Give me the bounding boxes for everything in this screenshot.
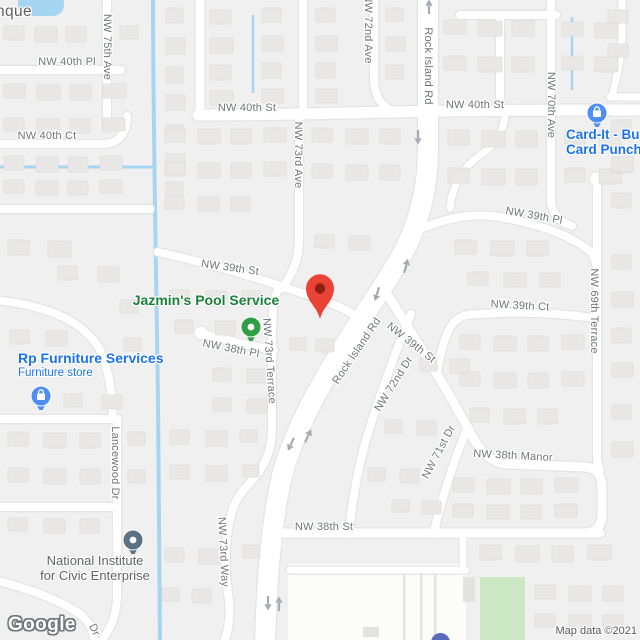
building (80, 469, 100, 484)
building (128, 432, 145, 445)
building (346, 165, 368, 180)
lot-strip (420, 573, 423, 640)
building (103, 118, 125, 131)
building (262, 63, 281, 78)
building (290, 338, 306, 350)
building (165, 196, 184, 209)
building (521, 479, 542, 494)
building (608, 10, 628, 23)
street-label: NW 70th Ave (545, 72, 557, 138)
building (417, 421, 436, 435)
building (4, 156, 24, 170)
building (100, 156, 122, 170)
building (468, 272, 488, 285)
building (400, 469, 419, 483)
building (192, 589, 211, 603)
building (166, 95, 185, 110)
building (4, 84, 25, 98)
building (199, 549, 220, 564)
street-label: Lancewood Dr (109, 426, 121, 499)
building (535, 614, 555, 627)
street-label: NW 40th Pl (38, 56, 96, 68)
building (58, 266, 77, 280)
poi-pin-rp-furniture-services[interactable] (29, 378, 53, 415)
building (4, 26, 24, 40)
street-label: NW 40th Ct (18, 130, 77, 142)
street-label: NW 73rd Ave (292, 122, 304, 189)
building (165, 548, 184, 562)
building (315, 235, 334, 248)
building (175, 320, 193, 333)
red-map-pin-marker[interactable] (306, 274, 334, 325)
building (170, 430, 189, 444)
building (612, 193, 631, 208)
building (453, 478, 474, 492)
poi-label-card-it-card-punch[interactable]: Card-It - BuCard Punch (566, 128, 640, 157)
gray-building (363, 627, 379, 637)
shopping-bag-pin-icon (585, 95, 609, 127)
building (166, 38, 185, 54)
building (68, 181, 88, 195)
building (206, 466, 227, 481)
building (562, 56, 583, 70)
building (316, 36, 337, 51)
building (512, 57, 534, 72)
building (35, 27, 57, 42)
building (8, 518, 27, 531)
building (569, 586, 591, 601)
building (166, 182, 183, 197)
building (231, 129, 251, 144)
building (262, 8, 281, 22)
building (555, 478, 578, 492)
building (210, 65, 231, 80)
building (562, 335, 584, 349)
building (444, 56, 466, 70)
building (103, 84, 126, 98)
building (240, 430, 257, 442)
building (36, 181, 58, 195)
building (538, 409, 557, 424)
street-label: Rock Island Rd (422, 27, 434, 104)
building (37, 85, 60, 100)
building (44, 519, 65, 533)
building (470, 408, 489, 422)
building (48, 241, 71, 257)
building (98, 267, 119, 282)
building (422, 501, 441, 514)
building (453, 504, 473, 517)
building (487, 505, 509, 519)
locality-label: nque (0, 3, 32, 21)
building (562, 22, 583, 36)
building (166, 67, 183, 83)
building (540, 273, 560, 287)
building (262, 36, 283, 51)
building (386, 37, 405, 51)
building (215, 321, 235, 335)
dot-pin-icon (121, 522, 145, 554)
building (10, 330, 29, 344)
building (392, 500, 409, 512)
poi-subtitle: Furniture store (18, 366, 164, 381)
building (264, 162, 286, 176)
building (36, 157, 58, 172)
building (4, 180, 24, 193)
building (516, 546, 539, 562)
building (612, 405, 631, 419)
building (243, 465, 259, 477)
building (612, 328, 631, 343)
building (247, 399, 267, 413)
building (44, 469, 66, 484)
building (480, 545, 501, 560)
park-area (480, 577, 525, 640)
street-label: NW 75th Ave (101, 14, 113, 80)
building (460, 335, 480, 349)
building (521, 505, 541, 519)
building (512, 21, 534, 36)
building (565, 168, 585, 182)
building (555, 504, 577, 517)
building (64, 394, 82, 407)
building (231, 197, 250, 211)
building (385, 420, 402, 433)
lot-strip (434, 573, 437, 640)
building (460, 372, 480, 386)
building (262, 89, 283, 103)
building (166, 8, 183, 23)
building (44, 433, 66, 448)
building (448, 130, 469, 145)
building (386, 8, 403, 21)
building (243, 545, 260, 558)
building (316, 63, 335, 78)
building (494, 373, 516, 388)
building (380, 129, 400, 144)
poi-title-line: Card-It - Bu (566, 128, 640, 143)
building (603, 586, 623, 601)
building (528, 373, 548, 388)
building (482, 169, 505, 185)
building (478, 21, 502, 36)
building (231, 163, 251, 178)
building (595, 23, 618, 38)
building (504, 409, 525, 424)
poi-title-line: for Civic Enterprise (40, 569, 150, 584)
building (165, 128, 185, 142)
building (448, 168, 469, 183)
building (380, 165, 400, 180)
gray-building (463, 577, 475, 602)
building (165, 162, 185, 176)
building (70, 85, 91, 100)
google-logo[interactable]: Google (8, 614, 76, 636)
map-canvas[interactable]: NW 40th PlNW 75th AveNW 40th StNW 40th C… (0, 0, 640, 640)
building (487, 479, 510, 494)
poi-label-jazmins-pool-service[interactable]: Jazmin's Pool Service (133, 293, 280, 308)
building (444, 20, 466, 34)
street-label: NW 72nd Ave (362, 0, 374, 64)
building (494, 336, 516, 351)
building (312, 164, 332, 178)
building (100, 180, 122, 193)
poi-title-line: Jazmin's Pool Service (133, 293, 280, 308)
poi-title-line: Rp Furniture Services (18, 351, 164, 366)
street-label: NW 69th Terrace (588, 268, 600, 353)
shopping-bag-pin-icon (29, 378, 53, 410)
building (491, 241, 514, 256)
building (46, 331, 67, 346)
building (482, 131, 505, 147)
building (8, 240, 29, 255)
poi-title-line: Card Punch (566, 143, 640, 158)
building (516, 131, 537, 147)
building (206, 431, 227, 446)
building (213, 368, 231, 381)
map-attribution: Map data ©2021 (556, 625, 638, 637)
poi-title-line: National Institute (40, 554, 150, 569)
building (527, 241, 548, 256)
building (66, 27, 86, 42)
dot-pin-icon (239, 309, 263, 341)
building (162, 588, 179, 601)
building (368, 468, 385, 481)
building (450, 359, 469, 373)
building (612, 363, 633, 377)
building (595, 57, 618, 72)
building (198, 197, 219, 211)
poi-label-national-institute-for-civic-enterprise[interactable]: National Institutefor Civic Enterprise (40, 554, 150, 583)
building (213, 398, 231, 411)
building (68, 157, 88, 172)
building (198, 129, 220, 144)
building (504, 273, 526, 287)
building (612, 255, 631, 269)
building (535, 585, 555, 599)
lot-strip (403, 573, 406, 640)
street-label: NW 40th St (446, 99, 504, 111)
building (386, 65, 403, 79)
building (346, 129, 368, 144)
building (210, 10, 231, 24)
building (80, 519, 99, 533)
street-label: NW 38th St (295, 521, 353, 533)
street-label: NW 40th St (218, 102, 276, 114)
building (562, 372, 584, 386)
building (612, 292, 633, 307)
building (210, 38, 233, 53)
building (608, 44, 628, 57)
building (316, 339, 334, 352)
poi-pin-jazmins-pool-service[interactable] (239, 309, 263, 346)
building (8, 432, 28, 446)
building (612, 442, 633, 457)
building (316, 89, 337, 103)
building (264, 128, 286, 142)
building (349, 236, 370, 250)
building (588, 545, 611, 560)
building (128, 470, 145, 483)
building (516, 169, 537, 185)
red-pin-icon (306, 274, 334, 320)
building (612, 157, 633, 172)
building (102, 395, 122, 409)
building (198, 163, 220, 178)
building (478, 57, 502, 72)
building (312, 128, 332, 142)
building (552, 546, 573, 562)
building (316, 8, 335, 22)
poi-label-rp-furniture-services[interactable]: Rp Furniture ServicesFurniture store (18, 351, 164, 380)
building (120, 26, 138, 39)
building (80, 433, 100, 448)
building (170, 465, 189, 479)
building (8, 468, 28, 482)
building (455, 240, 476, 254)
building (528, 336, 548, 351)
